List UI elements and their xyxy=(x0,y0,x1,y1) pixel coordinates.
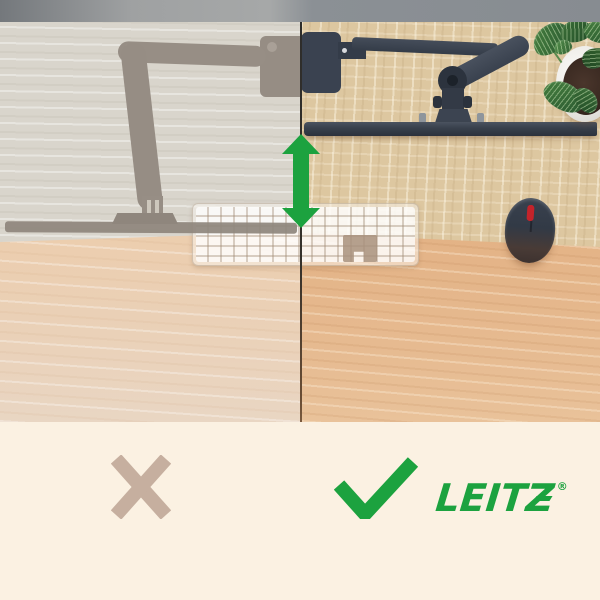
mount-knob xyxy=(463,96,472,108)
leitz-z-crossbar xyxy=(533,496,552,501)
vesa-plate xyxy=(435,109,472,123)
leitz-logo: LEITZ ® xyxy=(436,484,554,524)
registered-trademark-mark: ® xyxy=(557,480,568,493)
wall-edge-bar xyxy=(0,0,600,22)
x-icon xyxy=(111,455,171,523)
monitor-mount xyxy=(442,88,464,112)
verdict-panel: LEITZ ® xyxy=(0,422,600,600)
faded-monitor-top-edge xyxy=(5,221,297,234)
arm-elbow-screw xyxy=(447,75,458,86)
mount-knob xyxy=(433,96,442,108)
arm-link-screw xyxy=(342,48,347,53)
faded-clamp-screw xyxy=(267,42,277,52)
desk-clamp xyxy=(301,32,341,93)
desk-photo-area xyxy=(0,22,600,422)
mouse-scroll-wheel xyxy=(526,205,534,221)
product-comparison-image: LEITZ ® xyxy=(0,0,600,600)
monitor-top-edge xyxy=(304,122,597,136)
check-icon xyxy=(334,457,418,523)
height-adjust-arrow-icon xyxy=(280,133,322,233)
